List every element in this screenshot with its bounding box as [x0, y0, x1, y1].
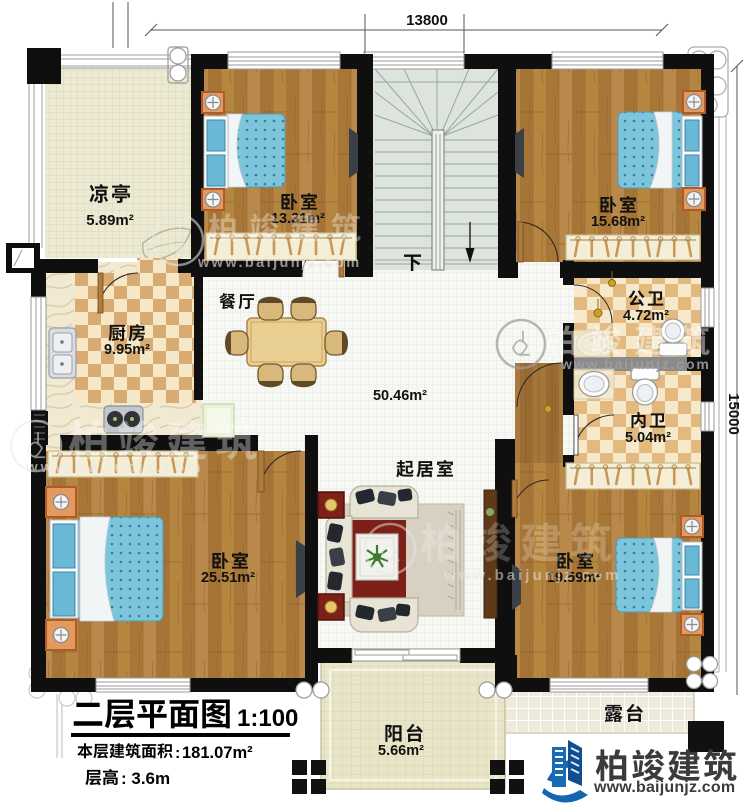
svg-text:www.baijunjz.com: www.baijunjz.com	[197, 255, 362, 271]
svg-text:181.07m²: 181.07m²	[182, 744, 253, 762]
svg-text:1:100: 1:100	[237, 705, 298, 732]
svg-text::: :	[175, 745, 180, 762]
svg-text:www.baijunjz.com: www.baijunjz.com	[25, 459, 203, 476]
svg-text:9.95m²: 9.95m²	[104, 342, 150, 358]
svg-text:www.baijunjz.com: www.baijunjz.com	[560, 356, 711, 372]
svg-text:5.66m²: 5.66m²	[378, 743, 424, 759]
svg-text:50.46m²: 50.46m²	[373, 388, 427, 404]
svg-text:: 3.6m: : 3.6m	[121, 769, 170, 788]
svg-text:15000: 15000	[725, 393, 742, 435]
svg-text:www.baijunjz.com: www.baijunjz.com	[443, 567, 621, 584]
svg-text:5.04m²: 5.04m²	[625, 430, 671, 446]
svg-text:www.baijunjz.com: www.baijunjz.com	[593, 779, 735, 796]
svg-text:4.72m²: 4.72m²	[623, 308, 669, 324]
svg-text:13800: 13800	[406, 12, 448, 29]
svg-text:15.68m²: 15.68m²	[591, 214, 645, 230]
svg-text:5.89m²: 5.89m²	[86, 212, 134, 229]
svg-text:25.51m²: 25.51m²	[201, 570, 255, 586]
